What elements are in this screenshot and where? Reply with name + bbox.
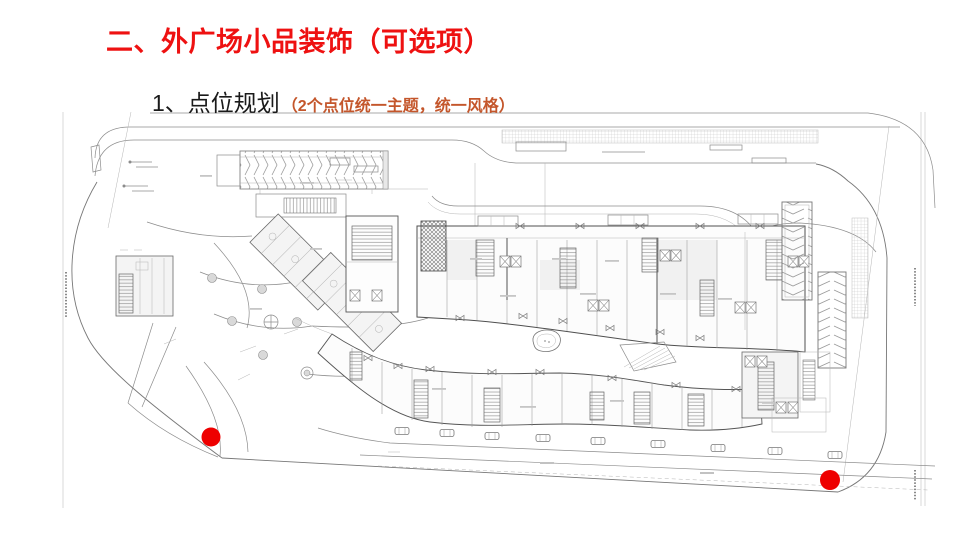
main-retail-building [417,214,809,352]
entry-canopy [217,151,428,194]
amphitheater-steps [620,342,676,371]
marker-point-1 [202,428,221,447]
subtitle-note: （2个点位统一主题，统一风格） [282,92,515,116]
marker-point-2 [820,470,840,490]
slide: 二、外广场小品装饰（可选项） 1、点位规划 （2个点位统一主题，统一风格） [0,0,960,540]
slide-subtitle-row: 1、点位规划 （2个点位统一主题，统一风格） [152,84,515,118]
slide-title: 二、外广场小品装饰（可选项） [106,20,491,59]
slide-subtitle: 1、点位规划 [152,84,280,118]
pond [533,330,561,352]
site-plan-drawing [0,0,960,540]
west-small-building [116,250,173,316]
